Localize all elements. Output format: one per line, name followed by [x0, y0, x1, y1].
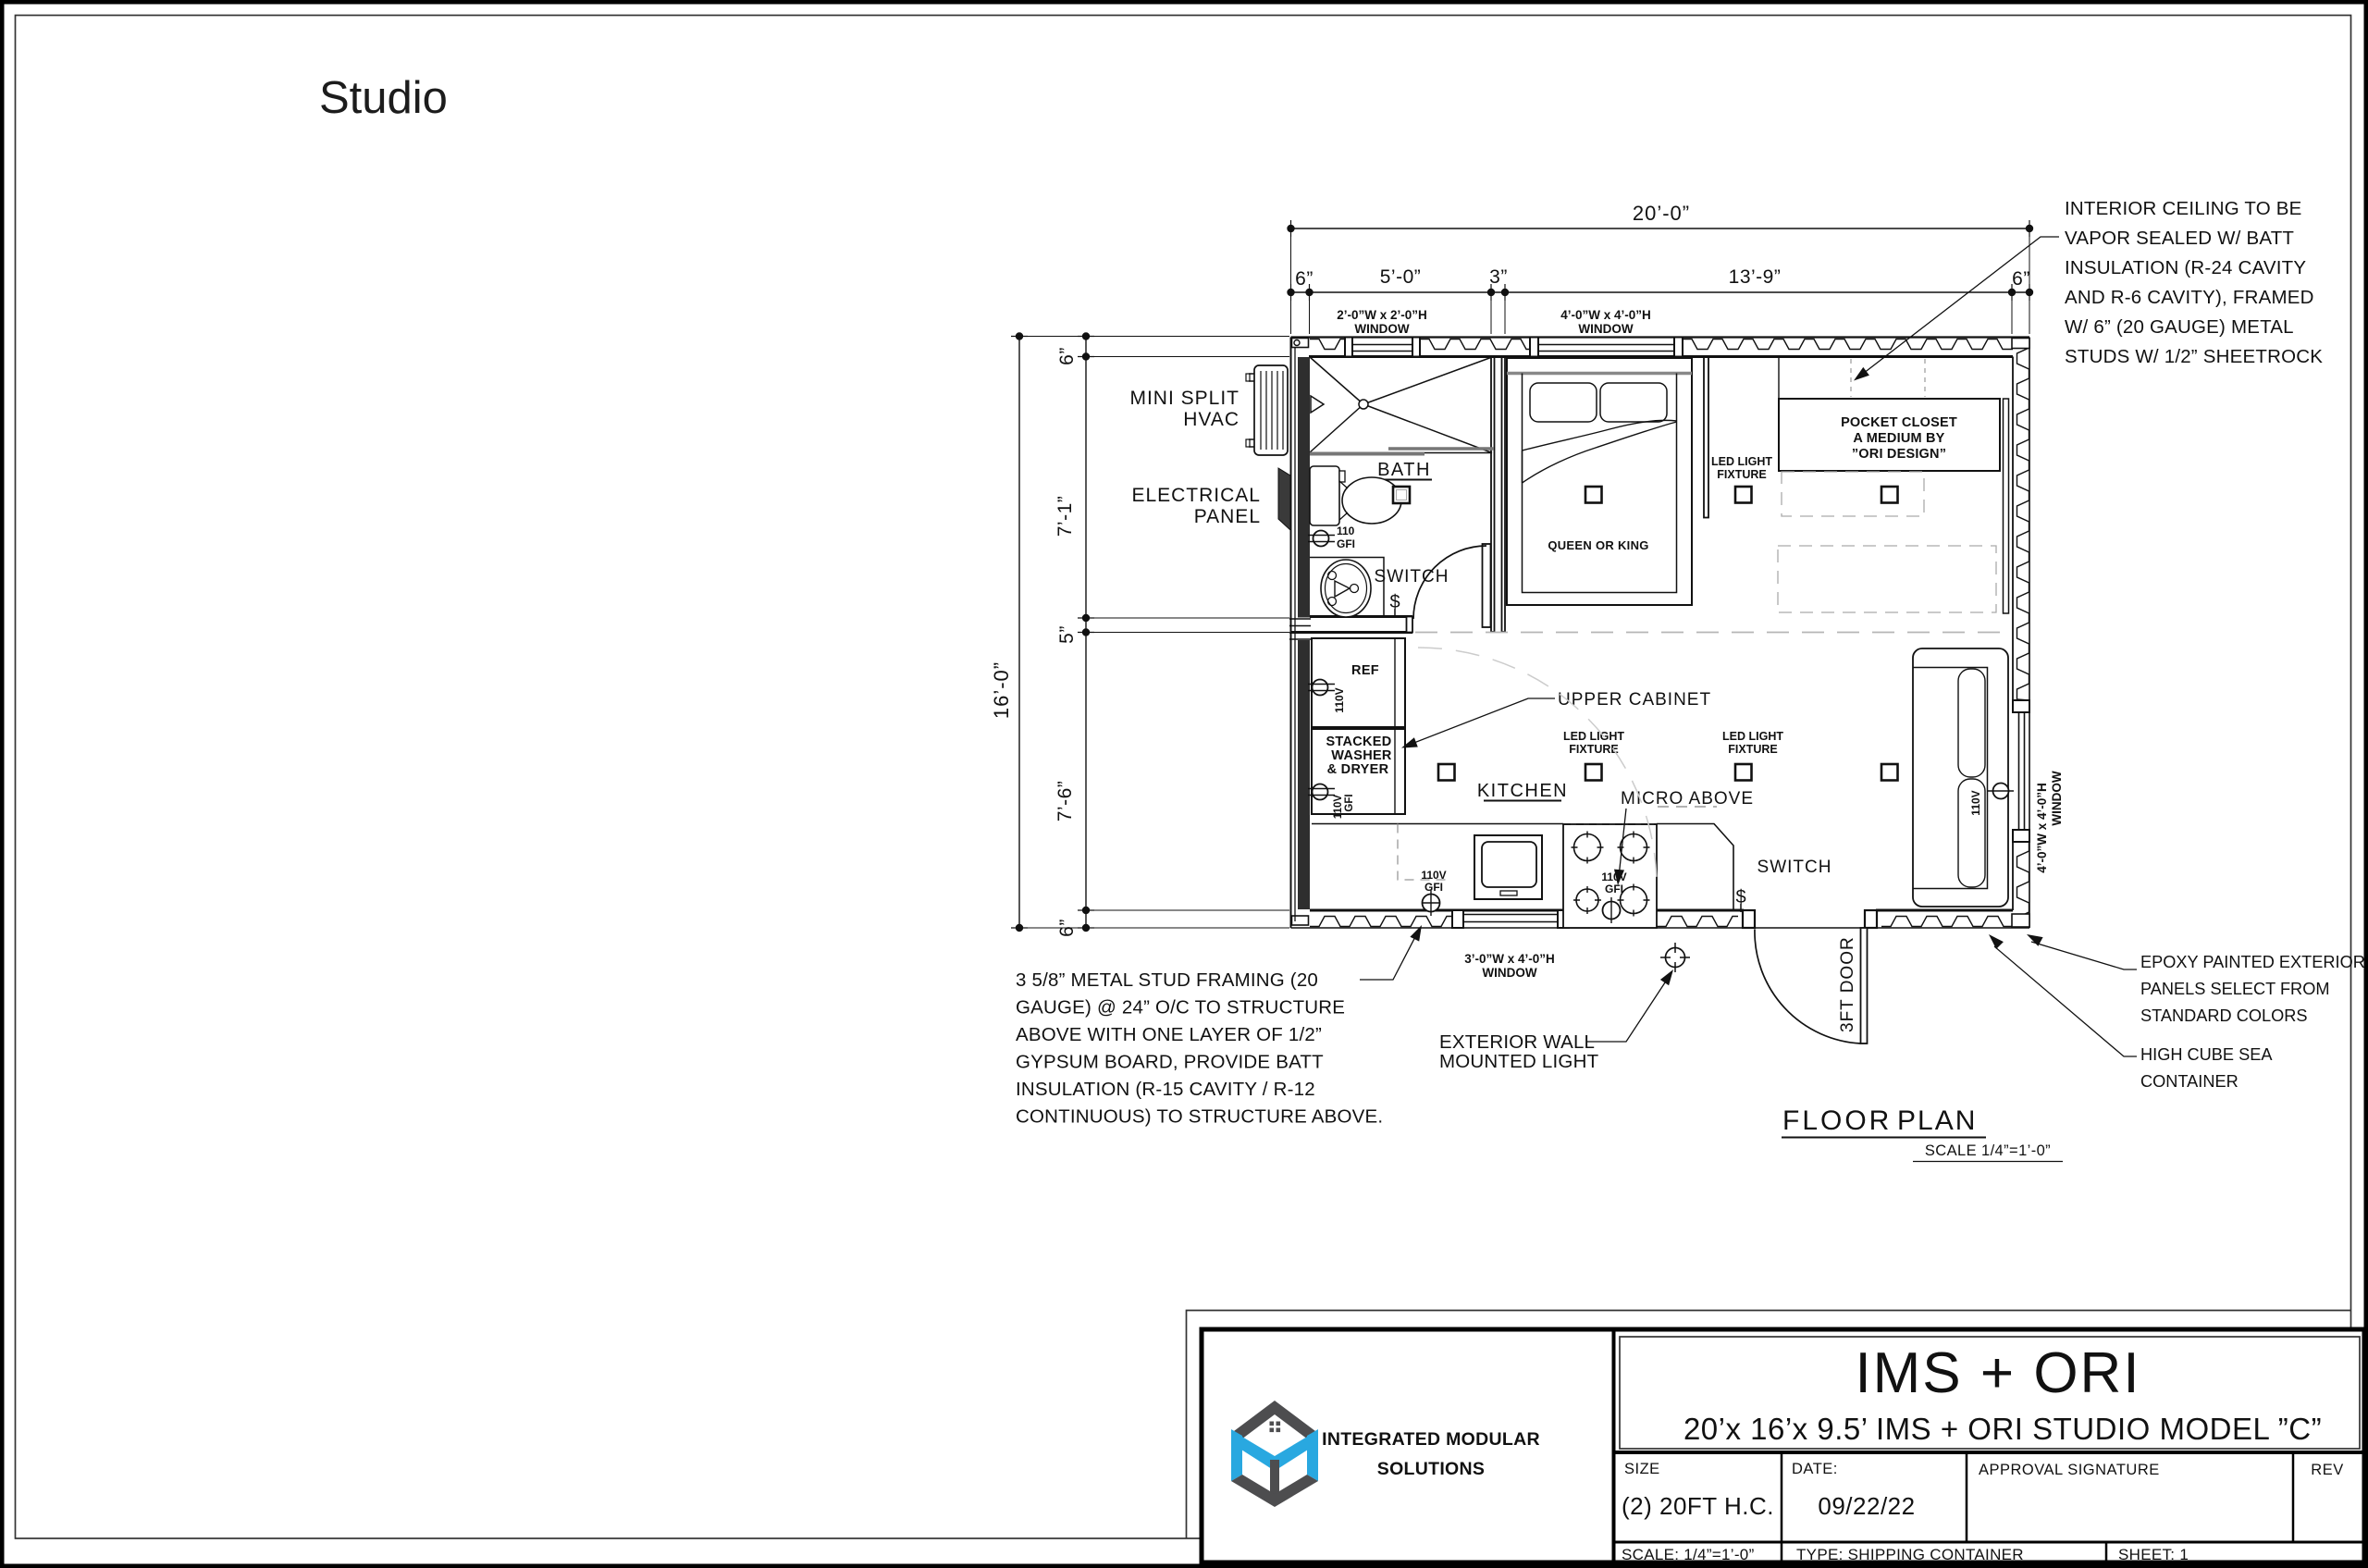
- svg-text:6”: 6”: [1056, 347, 1078, 365]
- svg-text:STANDARD COLORS: STANDARD COLORS: [2140, 1006, 2308, 1025]
- svg-text:PLAN: PLAN: [1897, 1105, 1977, 1136]
- svg-text:& DRYER: & DRYER: [1327, 762, 1389, 777]
- svg-text:IMS + ORI: IMS + ORI: [1855, 1341, 2140, 1405]
- svg-text:4’-0”W x 4’-0”H: 4’-0”W x 4’-0”H: [1560, 308, 1651, 322]
- svg-text:HIGH CUBE SEA: HIGH CUBE SEA: [2140, 1045, 2273, 1064]
- svg-text:EXTERIOR WALL: EXTERIOR WALL: [1439, 1031, 1595, 1053]
- svg-text:CONTINUOUS) TO STRUCTURE ABOVE: CONTINUOUS) TO STRUCTURE ABOVE.: [1016, 1106, 1383, 1128]
- svg-text:AND R-6 CAVITY), FRAMED: AND R-6 CAVITY), FRAMED: [2065, 287, 2314, 308]
- svg-text:BATH: BATH: [1377, 460, 1431, 480]
- svg-text:A MEDIUM BY: A MEDIUM BY: [1853, 431, 1944, 446]
- svg-text:FIXTURE: FIXTURE: [1728, 743, 1777, 756]
- svg-text:7’-6”: 7’-6”: [1054, 781, 1076, 822]
- svg-text:110V: 110V: [1421, 869, 1446, 882]
- svg-text:5”: 5”: [1056, 625, 1078, 644]
- svg-text:INTEGRATED MODULAR: INTEGRATED MODULAR: [1322, 1429, 1540, 1450]
- svg-text:INSULATION (R-24 CAVITY: INSULATION (R-24 CAVITY: [2065, 257, 2306, 278]
- svg-text:PANEL: PANEL: [1194, 506, 1261, 527]
- svg-text:3 5/8” METAL STUD FRAMING (20: 3 5/8” METAL STUD FRAMING (20: [1016, 969, 1318, 991]
- svg-text:STUDS W/ 1/2” SHEETROCK: STUDS W/ 1/2” SHEETROCK: [2065, 346, 2323, 367]
- svg-text:WINDOW: WINDOW: [1354, 322, 1409, 336]
- svg-text:13’-9”: 13’-9”: [1729, 266, 1782, 288]
- svg-text:Studio: Studio: [319, 73, 448, 123]
- svg-text:7’-1”: 7’-1”: [1054, 496, 1076, 537]
- svg-text:GFI: GFI: [1605, 883, 1623, 895]
- svg-text:3FT DOOR: 3FT DOOR: [1838, 936, 1857, 1032]
- svg-text:REV: REV: [2311, 1462, 2343, 1478]
- svg-text:WINDOW: WINDOW: [2050, 771, 2064, 825]
- svg-text:(2) 20FT H.C.: (2) 20FT H.C.: [1622, 1492, 1774, 1520]
- svg-text:16’-0”: 16’-0”: [990, 661, 1013, 719]
- svg-text:APPROVAL SIGNATURE: APPROVAL SIGNATURE: [1979, 1462, 2160, 1478]
- svg-text:ELECTRICAL: ELECTRICAL: [1131, 485, 1261, 506]
- svg-text:GFI: GFI: [1337, 537, 1355, 550]
- svg-text:SOLUTIONS: SOLUTIONS: [1377, 1459, 1485, 1479]
- svg-text:GFI: GFI: [1344, 794, 1355, 811]
- svg-text:WASHER: WASHER: [1331, 748, 1392, 763]
- svg-text:LED LIGHT: LED LIGHT: [1722, 730, 1783, 743]
- svg-text:REF: REF: [1351, 663, 1379, 678]
- svg-text:SWITCH: SWITCH: [1757, 858, 1832, 877]
- svg-text:3”: 3”: [1489, 266, 1508, 288]
- svg-text:LED LIGHT: LED LIGHT: [1711, 455, 1772, 468]
- svg-text:5’-0”: 5’-0”: [1380, 266, 1422, 288]
- svg-text:W/ 6” (20 GAUGE) METAL: W/ 6” (20 GAUGE) METAL: [2065, 316, 2294, 338]
- svg-text:CONTAINER: CONTAINER: [2140, 1072, 2238, 1091]
- svg-text:VAPOR SEALED W/ BATT: VAPOR SEALED W/ BATT: [2065, 228, 2294, 249]
- svg-text:EPOXY PAINTED EXTERIOR: EPOXY PAINTED EXTERIOR: [2140, 953, 2365, 971]
- svg-text:WINDOW: WINDOW: [1578, 322, 1633, 336]
- svg-text:110V: 110V: [1969, 790, 1982, 815]
- svg-text:110V: 110V: [1333, 795, 1344, 820]
- svg-text:GYPSUM BOARD, PROVIDE BATT: GYPSUM BOARD, PROVIDE BATT: [1016, 1052, 1324, 1073]
- svg-text:LED LIGHT: LED LIGHT: [1563, 730, 1624, 743]
- svg-text:2’-0”W x 2’-0”H: 2’-0”W x 2’-0”H: [1337, 308, 1427, 322]
- svg-text:WINDOW: WINDOW: [1482, 966, 1536, 980]
- svg-text:TYPE: SHIPPING CONTAINER: TYPE: SHIPPING CONTAINER: [1796, 1546, 2024, 1563]
- svg-text:110: 110: [1337, 525, 1355, 537]
- svg-text:SCALE 1/4”=1’-0”: SCALE 1/4”=1’-0”: [1925, 1142, 2051, 1159]
- svg-text:SHEET: 1: SHEET: 1: [2118, 1546, 2189, 1563]
- svg-text:POCKET CLOSET: POCKET CLOSET: [1841, 415, 1957, 430]
- svg-text:DATE:: DATE:: [1792, 1461, 1838, 1477]
- svg-text:SIZE: SIZE: [1624, 1461, 1660, 1477]
- svg-text:QUEEN OR KING: QUEEN OR KING: [1548, 538, 1648, 552]
- svg-text:UPPER CABINET: UPPER CABINET: [1558, 690, 1711, 710]
- svg-text:3’-0”W x 4’-0”H: 3’-0”W x 4’-0”H: [1464, 952, 1555, 966]
- svg-text:6”: 6”: [1295, 268, 1313, 290]
- svg-text:SWITCH: SWITCH: [1375, 567, 1449, 586]
- svg-text:INSULATION (R-15 CAVITY / R-12: INSULATION (R-15 CAVITY / R-12: [1016, 1079, 1315, 1100]
- svg-text:6”: 6”: [2012, 268, 2030, 290]
- svg-text:110V: 110V: [1333, 687, 1346, 712]
- svg-text:GAUGE) @ 24” O/C TO STRUCTURE: GAUGE) @ 24” O/C TO STRUCTURE: [1016, 997, 1345, 1019]
- svg-text:4’-0”W x 4’-0”H: 4’-0”W x 4’-0”H: [2035, 783, 2049, 873]
- svg-text:SCALE: 1/4”=1’-0”: SCALE: 1/4”=1’-0”: [1622, 1546, 1755, 1563]
- svg-text:09/22/22: 09/22/22: [1818, 1492, 1915, 1520]
- svg-text:20’x 16’x 9.5’ IMS + ORI STUDI: 20’x 16’x 9.5’ IMS + ORI STUDIO MODEL ”C…: [1683, 1412, 2322, 1446]
- svg-text:HVAC: HVAC: [1183, 409, 1239, 430]
- svg-text:FIXTURE: FIXTURE: [1717, 468, 1766, 481]
- svg-text:GFI: GFI: [1424, 881, 1443, 894]
- svg-text:KITCHEN: KITCHEN: [1477, 781, 1568, 801]
- svg-text:STACKED: STACKED: [1326, 735, 1391, 749]
- svg-text:FLOOR: FLOOR: [1782, 1105, 1892, 1136]
- svg-text:MINI SPLIT: MINI SPLIT: [1129, 388, 1239, 409]
- svg-text:INTERIOR CEILING TO BE: INTERIOR CEILING TO BE: [2065, 198, 2302, 219]
- svg-text:MOUNTED LIGHT: MOUNTED LIGHT: [1439, 1051, 1599, 1072]
- svg-text:ABOVE WITH ONE LAYER OF 1/2”: ABOVE WITH ONE LAYER OF 1/2”: [1016, 1024, 1322, 1045]
- svg-text:”ORI DESIGN”: ”ORI DESIGN”: [1852, 447, 1946, 462]
- svg-text:FIXTURE: FIXTURE: [1569, 743, 1618, 756]
- svg-text:6”: 6”: [1056, 919, 1078, 937]
- svg-text:PANELS SELECT FROM: PANELS SELECT FROM: [2140, 980, 2330, 998]
- svg-text:20’-0”: 20’-0”: [1633, 202, 1690, 225]
